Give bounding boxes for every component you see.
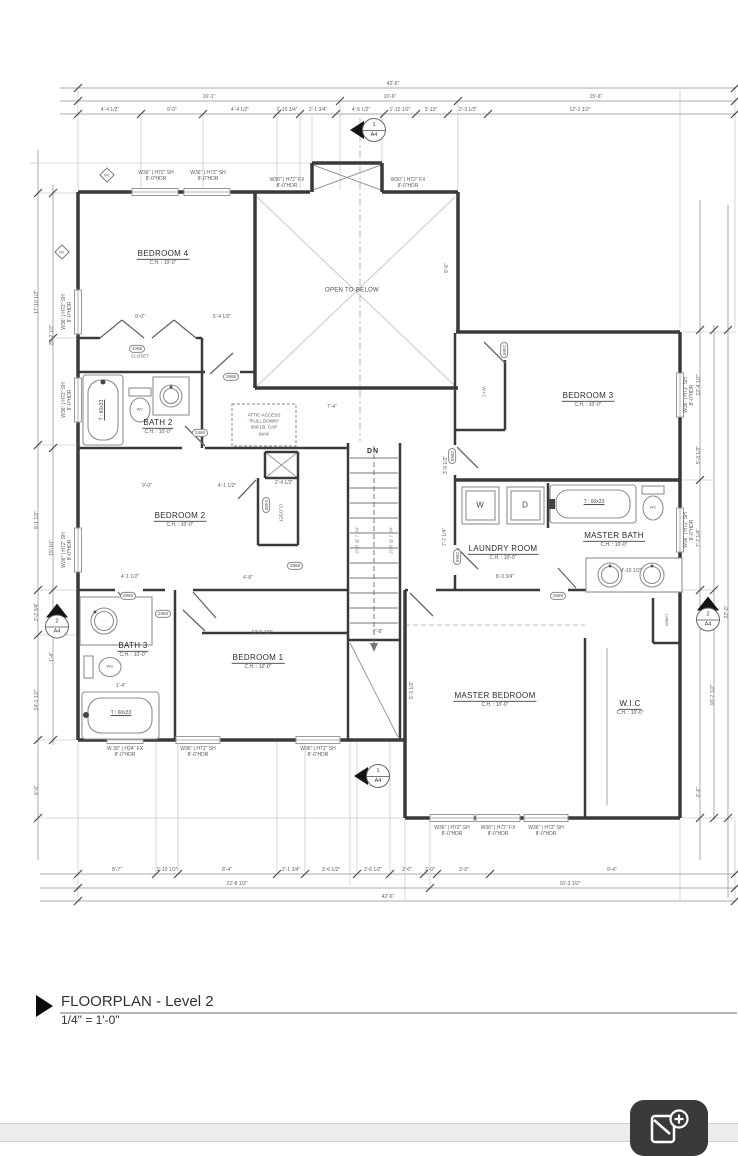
bottom-divider-band: [0, 1123, 738, 1142]
triangle-marker-icon: [36, 995, 53, 1017]
floorplan-drawing: [0, 0, 738, 1152]
bath3-fixtures: [80, 597, 159, 739]
staircase: [350, 446, 398, 737]
drawing-scale: 1/4" = 1'-0": [61, 1013, 214, 1027]
master-bath-fixtures: [548, 485, 682, 592]
fixtures: [80, 375, 682, 739]
drawing-title-block: FLOORPLAN - Level 2 1/4" = 1'-0": [36, 993, 214, 1027]
bath2-fixtures: [83, 375, 189, 445]
drawing-title: FLOORPLAN - Level 2: [61, 993, 214, 1010]
photo-plus-icon: [638, 1104, 700, 1152]
title-text-group: FLOORPLAN - Level 2 1/4" = 1'-0": [61, 993, 214, 1027]
title-underline: [60, 1012, 737, 1014]
floorplan-page: BEDROOM 4 C.H. : 10'-0" BEDROOM 3 C.H. :…: [0, 0, 738, 1152]
laundry-appliances: [462, 487, 544, 524]
reference-lines: [232, 118, 607, 805]
add-photo-button[interactable]: [630, 1100, 708, 1156]
